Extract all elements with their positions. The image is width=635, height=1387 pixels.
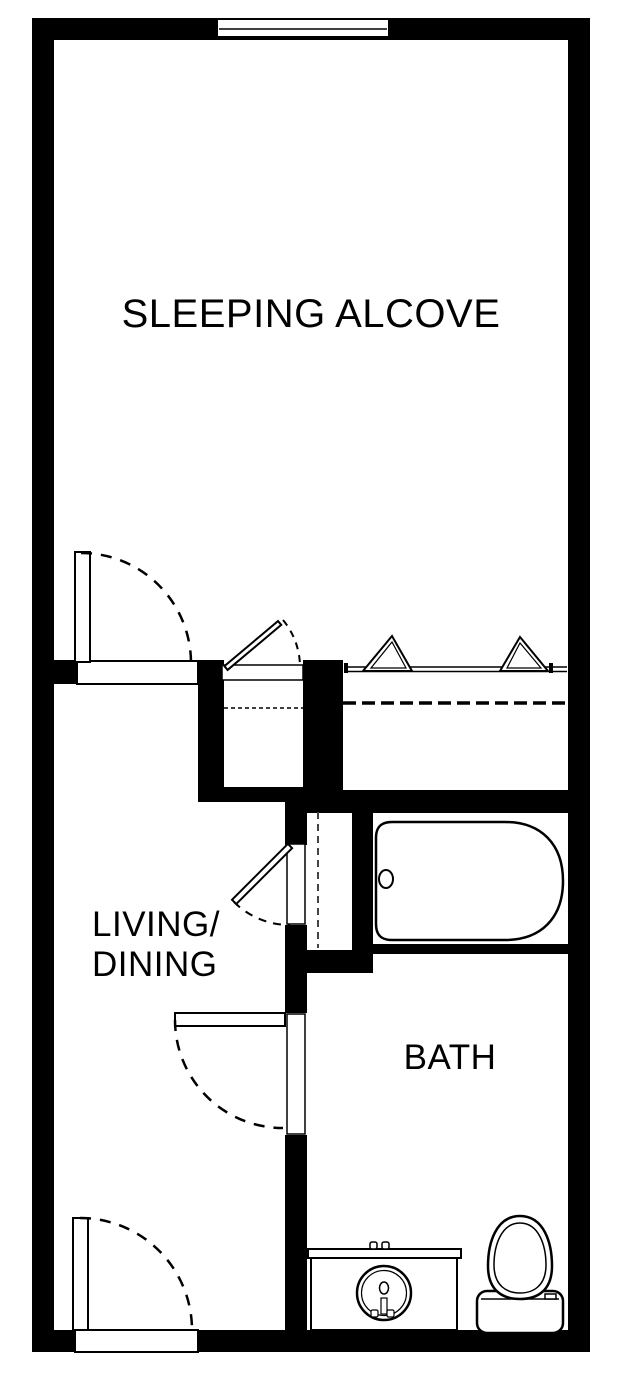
faucet-bump [382,1242,389,1249]
floor-plan-drawing [0,0,635,1387]
wall-bath-lower [285,1135,307,1330]
window [217,19,389,37]
floor-plan: SLEEPING ALCOVE LIVING/ DINING BATH [0,0,635,1387]
middle-closet-door-swing-arc [283,620,300,668]
faucet-bump [370,1242,377,1249]
wall-linen-bottom [285,950,373,973]
middle-closet-door-leaf [224,621,281,670]
middle-closet-sill [222,665,303,680]
bathtub-icon [376,822,563,940]
sink-handle [387,1310,394,1317]
room-label-living-dining: LIVING/ DINING [92,905,220,985]
bath-door-jamb [287,1014,305,1134]
alcove-door-leaf [75,552,90,662]
wall-alcove-stub [54,660,78,684]
bath-door-leaf [175,1013,285,1026]
room-label-bath: BATH [370,1038,530,1078]
sink-stem [381,1298,387,1314]
vanity-countertop [308,1249,461,1258]
entry-door-swing-arc [80,1218,192,1330]
sink-spout [380,1282,389,1294]
wall-right [568,18,590,1352]
bifold-closet-doors [363,636,548,671]
entry-door-threshold [75,1330,198,1352]
linen-closet-door-leaf [232,844,292,904]
linen-closet-door [232,844,292,925]
wall-left [32,18,54,1352]
toilet-flush-handle [545,1294,556,1299]
entry-door [73,1218,192,1330]
room-label-sleeping-alcove: SLEEPING ALCOVE [96,292,526,337]
alcove-door-threshold [77,661,198,684]
wall-tub-platform [373,944,568,954]
wall-under-big-closet [285,790,590,813]
bath-door [175,1013,285,1128]
toilet-bowl-inner [494,1223,546,1293]
bathtub-drain [379,870,393,888]
wall-linen-right [352,813,373,950]
toilet-icon [477,1216,563,1333]
sink-vanity-icon [308,1242,461,1330]
wall-closet-pillar-left [198,660,224,802]
room-label-living-line1: LIVING/ [92,905,220,945]
bathtub-outline [376,822,563,940]
linen-door-jamb [287,844,305,924]
linen-closet-door-swing-arc [234,902,290,925]
entry-door-leaf [73,1218,88,1330]
middle-closet-door [224,620,300,670]
alcove-door [75,552,191,663]
bath-door-swing-arc [175,1020,283,1128]
sink-handle [371,1310,378,1317]
room-label-living-line2: DINING [92,945,220,985]
alcove-door-swing-arc [81,553,191,663]
wall-bath-upper [285,790,307,845]
